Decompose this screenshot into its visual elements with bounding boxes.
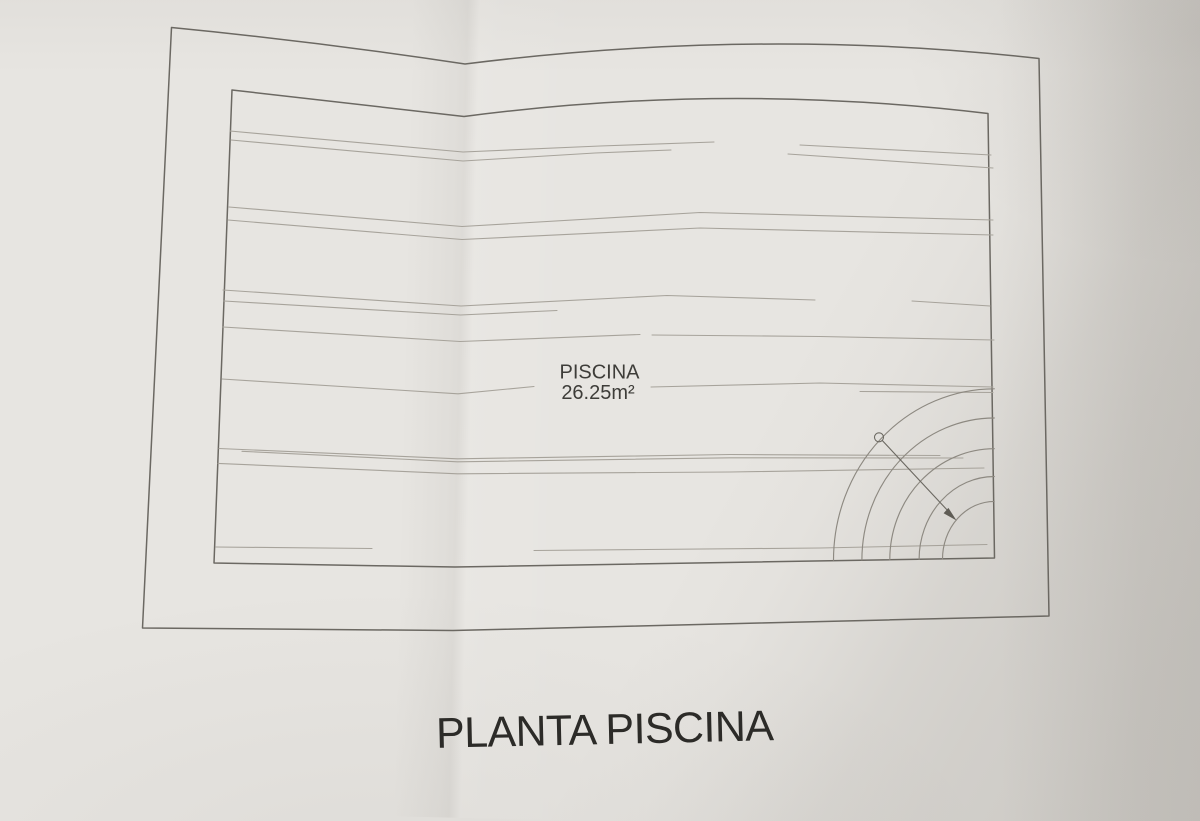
svg-text:26.25m²: 26.25m² [561,382,635,404]
svg-text:PISCINA: PISCINA [559,361,640,383]
svg-text:PLANTA PISCINA: PLANTA PISCINA [436,702,775,758]
